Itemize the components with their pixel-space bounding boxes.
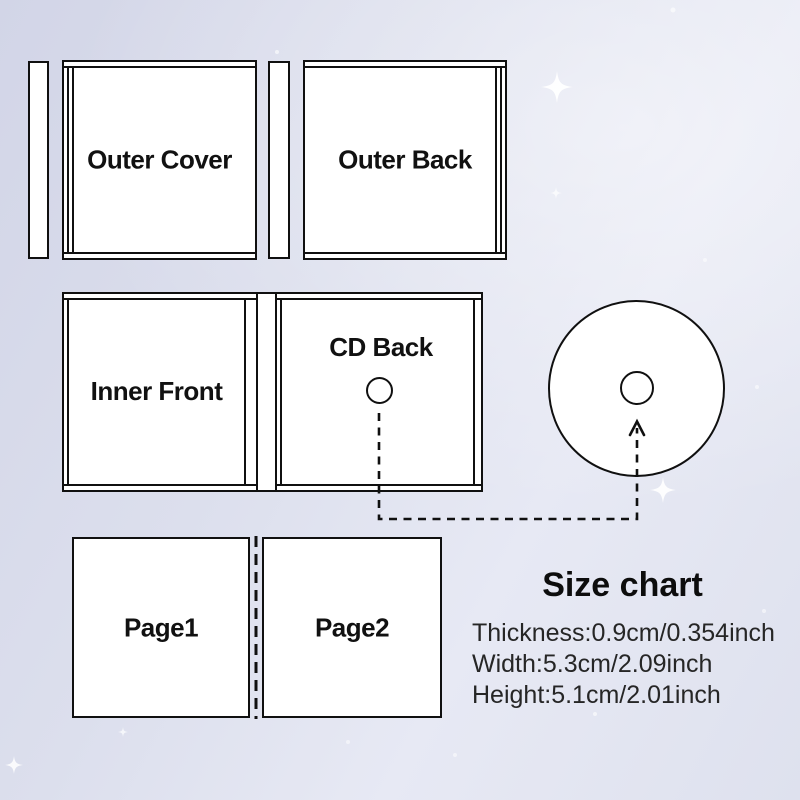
case-bottom-edge-line (305, 252, 505, 254)
center-spine (256, 294, 277, 490)
sparkle-icon (650, 477, 676, 503)
size-chart-title: Size chart (450, 566, 795, 605)
page2-panel: Page2 (262, 537, 442, 718)
opened-case-panel: Inner Front CD Back (62, 292, 483, 492)
cd-case-size-diagram: Outer Cover Outer Back Inner Front CD Ba… (0, 0, 800, 800)
sparkle-icon (5, 756, 23, 774)
case-hinge-line (473, 299, 475, 485)
case-top-edge-line (305, 66, 505, 68)
case-top-edge-line (64, 66, 255, 68)
cd-back-hub-hole-icon (366, 377, 393, 404)
cd-back-label: CD Back (280, 332, 482, 362)
outer-cover-label: Outer Cover (64, 145, 255, 176)
sparkle-dot-icon (346, 740, 350, 744)
right-panel-edge-line (280, 299, 282, 485)
page1-label: Page1 (74, 612, 248, 643)
sparkle-icon (550, 187, 562, 199)
size-chart-height: Height:5.1cm/2.01inch (472, 680, 795, 711)
sparkle-dot-icon (755, 385, 759, 389)
sparkle-icon (118, 727, 128, 737)
outer-back-panel: Outer Back (303, 60, 507, 260)
inner-front-label: Inner Front (64, 376, 249, 406)
outer-cover-panel: Outer Cover (62, 60, 257, 260)
page2-label: Page2 (264, 612, 440, 643)
cd-center-hole-icon (620, 371, 654, 405)
cd-disc (548, 300, 725, 477)
sparkle-dot-icon (671, 8, 676, 13)
size-chart: Size chart Thickness:0.9cm/0.354inch Wid… (450, 566, 795, 711)
sparkle-dot-icon (453, 753, 457, 757)
sparkle-dot-icon (703, 258, 707, 262)
spine-strip-right (268, 61, 290, 259)
sparkle-dot-icon (275, 50, 279, 54)
sparkle-dot-icon (593, 712, 597, 716)
page1-panel: Page1 (72, 537, 250, 718)
size-chart-width: Width:5.3cm/2.09inch (472, 649, 795, 680)
sparkle-icon (541, 71, 573, 103)
size-chart-thickness: Thickness:0.9cm/0.354inch (472, 618, 795, 649)
outer-back-label: Outer Back (305, 145, 505, 176)
spine-strip-left (28, 61, 49, 259)
case-bottom-edge-line (64, 252, 255, 254)
